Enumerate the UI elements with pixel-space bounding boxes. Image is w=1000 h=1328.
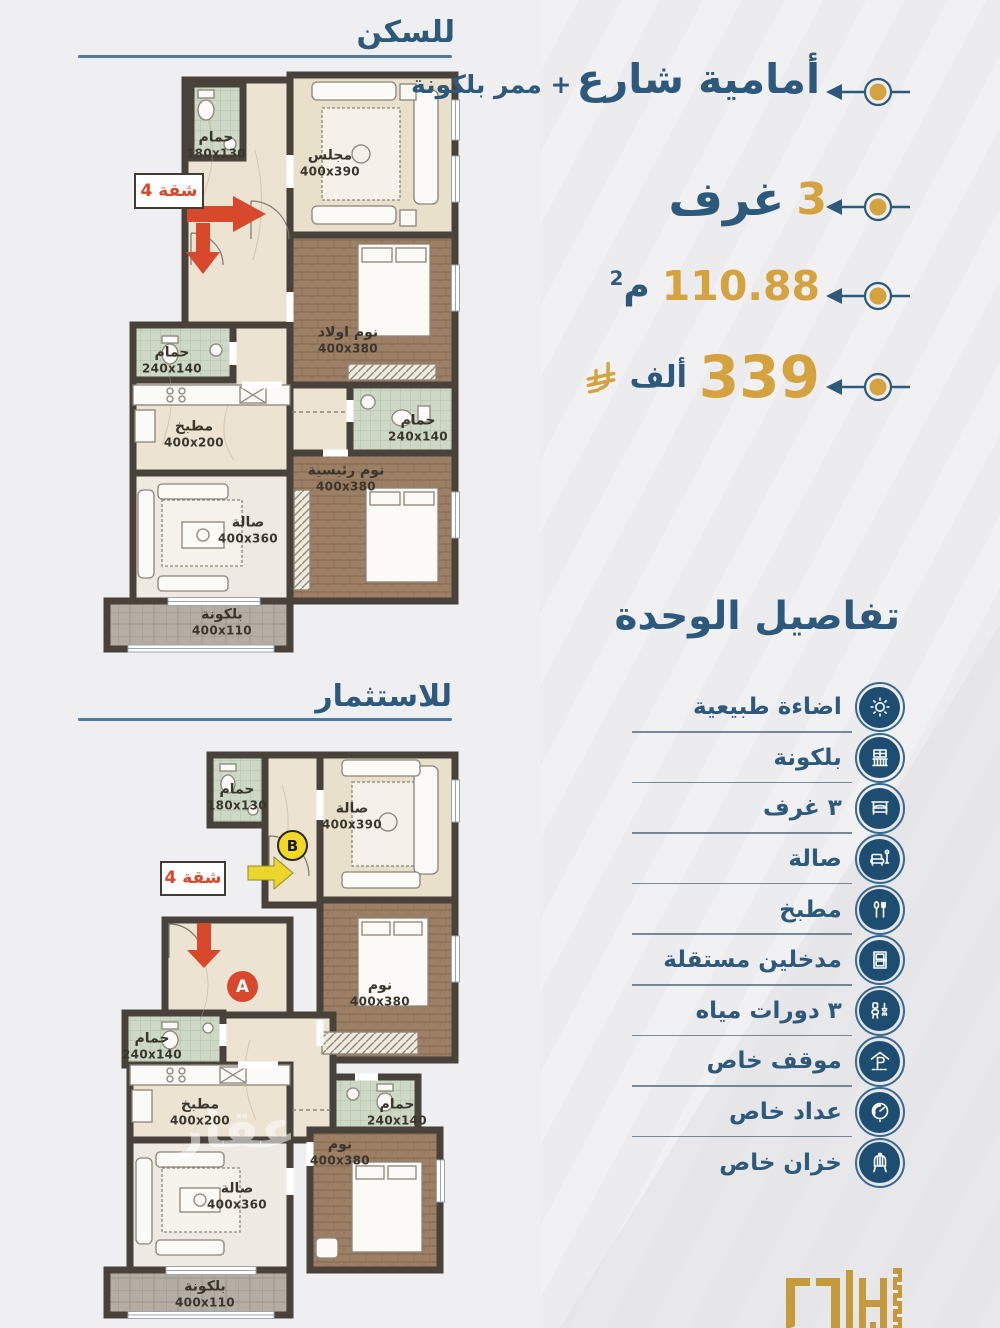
spec-area-unit: م2 (610, 266, 650, 307)
balcony-icon (855, 733, 905, 783)
feature-kitchen: مطبخ (620, 884, 905, 935)
unit-b-marker: B (277, 830, 308, 861)
room-label-kitchen: مطبخ400x200 (164, 419, 224, 450)
spec-frontage-line1: أمامية شارع (577, 55, 820, 103)
room-label-bath3-inv: حمام240x140 (367, 1097, 427, 1128)
meter-icon (855, 1087, 905, 1137)
sun-icon (855, 682, 905, 732)
spec-price-value: 339 (699, 348, 820, 406)
room-label-bath2: حمام240x140 (142, 345, 202, 376)
room-label-kids-bedroom: نوم اولاد400x380 (318, 325, 378, 356)
room-label-balcony-inv: بلكونة400x110 (175, 1279, 235, 1310)
details-title: تفاصيل الوحدة (615, 594, 900, 639)
room-lobby (290, 385, 350, 453)
feature-balcony: بلكونة (620, 733, 905, 784)
company-logo (782, 1256, 952, 1328)
spec-rooms-value: 3 (796, 174, 827, 225)
flyer-page: للسكن (0, 0, 1000, 1328)
room-label-hall: صالة400x360 (218, 515, 278, 546)
room-label-bath2-inv: حمام240x140 (122, 1031, 182, 1062)
feature-meter: عداد خاص (620, 1087, 905, 1138)
spec-price: 339 ألف (584, 348, 820, 406)
feature-hall: صالة (620, 834, 905, 885)
callout-arrow-4 (824, 369, 916, 405)
feature-tank: خزان خاص (620, 1137, 905, 1188)
callout-arrow-2 (824, 189, 916, 225)
spec-area: 110.88 م2 (610, 262, 820, 310)
spec-frontage: أمامية شارع + ممر بلكونة (405, 56, 820, 103)
investment-floor-plan-drawing (70, 690, 465, 1328)
feature-parking: موقف خاص (620, 1036, 905, 1087)
room-label-bath1-inv: حمام180x130 (207, 782, 267, 813)
room-label-kitchen-inv: مطبخ400x200 (170, 1097, 230, 1128)
room-label-master-bedroom: نوم رئيسية400x380 (308, 463, 385, 494)
bedroom-icon (855, 783, 905, 833)
apartment-badge-inv: شقة 4 (160, 861, 226, 896)
room-label-bedroom-right: نوم400x380 (350, 978, 410, 1009)
bathroom-icon (855, 986, 905, 1036)
room-label-bath3: حمام240x140 (388, 413, 448, 444)
feature-rooms: ٣ غرف (620, 783, 905, 834)
entrance-icon (855, 935, 905, 985)
callout-arrow-1 (824, 74, 916, 110)
spec-frontage-line2: + ممر بلكونة (405, 70, 572, 99)
feature-bathrooms: ٣ دورات مياه (620, 986, 905, 1037)
room-label-bedroom-bottom: نوم400x380 (310, 1137, 370, 1168)
room-entry-a (165, 920, 290, 1015)
tank-icon (855, 1138, 905, 1188)
residence-floor-plan: حمام180x130 مجلس400x390 نوم اولاد400x380… (70, 60, 465, 660)
sofa-icon (855, 834, 905, 884)
spec-area-value: 110.88 (662, 262, 820, 310)
room-label-bath1: حمام180x130 (186, 130, 246, 161)
features-list: اضاءة طبيعية بلكونة ٣ غرف صالة مطبخ (620, 682, 905, 1188)
spec-rooms-label: غرف (668, 172, 784, 227)
room-label-hall-top: صالة400x390 (322, 801, 382, 832)
spec-price-label: ألف (630, 360, 687, 395)
callout-arrow-3 (824, 278, 916, 314)
investment-floor-plan: حمام180x130 صالة400x390 نوم400x380 حمام2… (70, 690, 465, 1328)
parking-icon (855, 1036, 905, 1086)
feature-natural-light: اضاءة طبيعية (620, 682, 905, 733)
apartment-badge: شقة 4 (134, 173, 204, 209)
kitchen-icon (855, 885, 905, 935)
feature-entrances: مدخلين مستقلة (620, 935, 905, 986)
residence-plan-title: للسكن (357, 18, 455, 48)
room-label-hall-bottom: صالة400x360 (207, 1181, 267, 1212)
room-label-balcony: بلكونة400x110 (192, 607, 252, 638)
spec-rooms: 3 غرف (668, 172, 827, 227)
residence-title-rule (78, 55, 452, 58)
residence-floor-plan-drawing (70, 60, 465, 660)
room-label-majlis: مجلس400x390 (300, 148, 360, 179)
saudi-riyal-icon (584, 360, 618, 394)
unit-a-marker: A (227, 971, 258, 1002)
